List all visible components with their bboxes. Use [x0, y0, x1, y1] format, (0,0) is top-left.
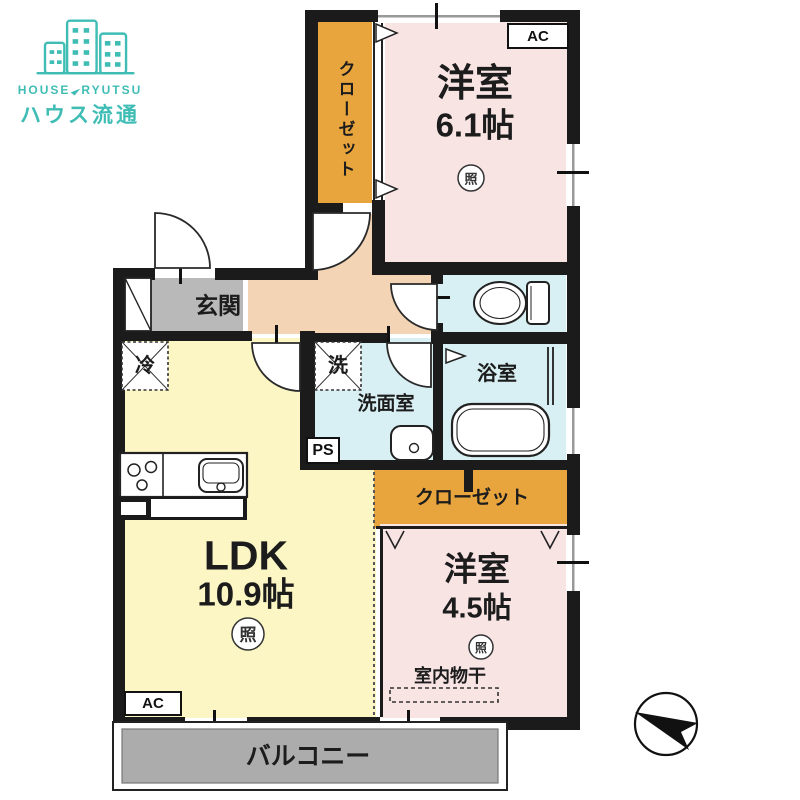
wall-segment: [215, 268, 318, 280]
ps-badge: PS: [306, 437, 340, 464]
window-tick: [557, 171, 589, 174]
bath-door-track: [547, 347, 549, 405]
track-line: [381, 22, 383, 200]
wall-segment: [300, 460, 580, 470]
toilet-bowl: [474, 282, 526, 324]
track-line: [373, 22, 375, 200]
closet-horizontal-label: クローゼット: [415, 489, 529, 508]
entrance-label: 玄関: [195, 295, 241, 318]
window-glass-line: [572, 144, 575, 206]
wall-segment: [374, 262, 580, 275]
washbasin-drain: [410, 444, 419, 453]
light-symbol: 照: [464, 173, 477, 186]
washer-label: 洗: [328, 356, 348, 376]
western-room-1-name: 洋室: [437, 65, 513, 103]
stove-burner: [146, 462, 157, 473]
wall-segment: [567, 10, 580, 730]
ac-badge-ldk: AC: [124, 691, 182, 716]
light-symbol: 照: [475, 642, 487, 654]
ldk-floor-2: [300, 466, 376, 720]
toilet-tank: [527, 282, 549, 324]
western-room-2-size: 4.5帖: [442, 595, 511, 624]
compass: [635, 693, 698, 755]
window-tick: [435, 3, 438, 29]
window-glass-line: [378, 15, 500, 18]
washroom-label: 洗面室: [357, 395, 414, 414]
ldk-size: 10.9帖: [197, 578, 294, 611]
kitchen-base-panel: [121, 502, 146, 515]
bathtub: [452, 404, 549, 456]
bath-door-track: [552, 347, 554, 405]
ac-badge-western1: AC: [507, 23, 569, 49]
wall-segment: [431, 270, 443, 284]
wall-segment: [376, 526, 567, 529]
ldk-name: LDK: [204, 536, 288, 577]
light-symbol: 照: [240, 627, 257, 644]
stove-burner: [137, 480, 147, 490]
indoor-laundry-label: 室内物干: [414, 667, 486, 685]
bathroom-label: 浴室: [477, 364, 517, 384]
wall-segment: [113, 331, 252, 341]
western-room-1-size: 6.1帖: [436, 109, 515, 142]
stove-burner: [128, 464, 140, 476]
washbasin: [391, 426, 433, 460]
floorplan-page: HOUSERYUTSU ハウス流通: [0, 0, 800, 800]
wall-segment: [305, 203, 343, 213]
closet-sliding-track: [372, 22, 385, 200]
entrance-door-arc: [155, 213, 210, 268]
refrigerator-label: 冷: [135, 356, 155, 376]
ldk-floor: [125, 338, 306, 720]
closet-vertical-label: クローゼット: [322, 40, 368, 200]
balcony-label: バルコニー: [246, 745, 371, 770]
kitchen-faucet: [217, 483, 225, 491]
wall-segment: [433, 338, 443, 466]
western-room-2-name: 洋室: [444, 553, 510, 586]
window-glass-line: [572, 408, 575, 454]
window-tick: [557, 561, 589, 564]
wall-segment: [431, 332, 567, 344]
kitchen-base-panel: [151, 499, 243, 517]
wall-segment: [380, 529, 383, 717]
